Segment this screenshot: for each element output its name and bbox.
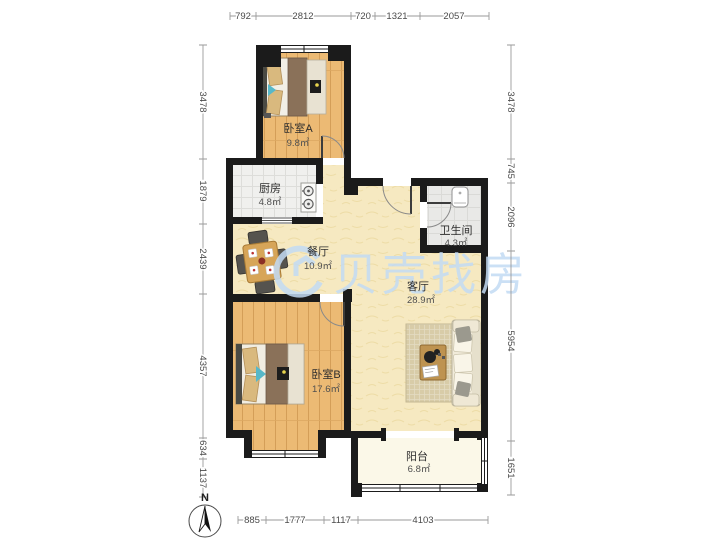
dim-right-3: 5954 (505, 330, 516, 351)
dim-left-4: 634 (197, 440, 208, 456)
bedroom-a-area: 9.8㎡ (287, 138, 310, 149)
dim-top-2: 720 (355, 11, 371, 22)
coffee-table-icon (420, 345, 446, 380)
dim-top-0: 792 (235, 11, 251, 22)
floor-plan-canvas: 贝壳找房 卧室A 9.8㎡ 厨房 4.8㎡ 餐厅 10.9㎡ 卫生间 4.3㎡ … (0, 0, 720, 540)
bedroom-b-label: 卧室B (311, 367, 340, 381)
stove-icon (301, 183, 316, 212)
kitchen-pass-window (262, 217, 292, 224)
dim-right-2: 2096 (505, 206, 516, 227)
dim-top-3: 1321 (386, 11, 407, 22)
watermark-text: 贝壳找房 (333, 249, 529, 300)
balcony-right-window (481, 438, 488, 484)
bedroom-b-area: 17.6㎡ (312, 384, 340, 395)
balcony-label: 阳台 (406, 449, 428, 463)
dim-right-1: 745 (505, 163, 516, 179)
dim-left-2: 2439 (197, 248, 208, 269)
bathroom-area: 4.3㎡ (445, 238, 468, 249)
dim-left-3: 4357 (197, 355, 208, 376)
bedroom-b-bay-floor (252, 430, 318, 450)
dim-top-4: 2057 (443, 11, 464, 22)
north-arrow: N (189, 492, 221, 537)
dining-area: 10.9㎡ (304, 261, 332, 272)
balcony-area: 6.8㎡ (408, 464, 431, 475)
dim-bottom-2: 1117 (331, 515, 351, 526)
bathroom-label: 卫生间 (440, 223, 473, 237)
dining-label: 餐厅 (307, 244, 329, 258)
dim-left-1: 1879 (197, 180, 208, 201)
dim-top-1: 2812 (292, 11, 313, 22)
north-label: N (201, 492, 209, 504)
compass-needle-west (199, 506, 205, 532)
bedroom-a-window (281, 45, 328, 53)
compass-needle-east (205, 506, 211, 532)
dim-left-0: 3478 (197, 91, 208, 112)
kitchen-area: 4.8㎡ (259, 197, 282, 208)
bedroom-b-bay-window (252, 450, 318, 458)
balcony-bottom-window (362, 484, 477, 492)
dim-right-4: 1651 (505, 457, 516, 478)
floor-plan-page: 贝壳找房 卧室A 9.8㎡ 厨房 4.8㎡ 餐厅 10.9㎡ 卫生间 4.3㎡ … (0, 0, 720, 540)
dim-bottom-1: 1777 (284, 515, 305, 526)
living-area: 28.9㎡ (407, 295, 435, 306)
dim-bottom-3: 4103 (412, 515, 433, 526)
washbasin-icon (452, 187, 468, 207)
bedroom-a-label: 卧室A (283, 121, 313, 135)
kitchen-label: 厨房 (259, 182, 281, 195)
living-label: 客厅 (407, 279, 429, 293)
dim-right-0: 3478 (505, 91, 516, 112)
bed-b-icon (236, 344, 304, 404)
dim-left-5: 1137 (197, 468, 208, 488)
sofa-icon (452, 320, 480, 406)
dim-bottom-0: 885 (244, 515, 260, 526)
